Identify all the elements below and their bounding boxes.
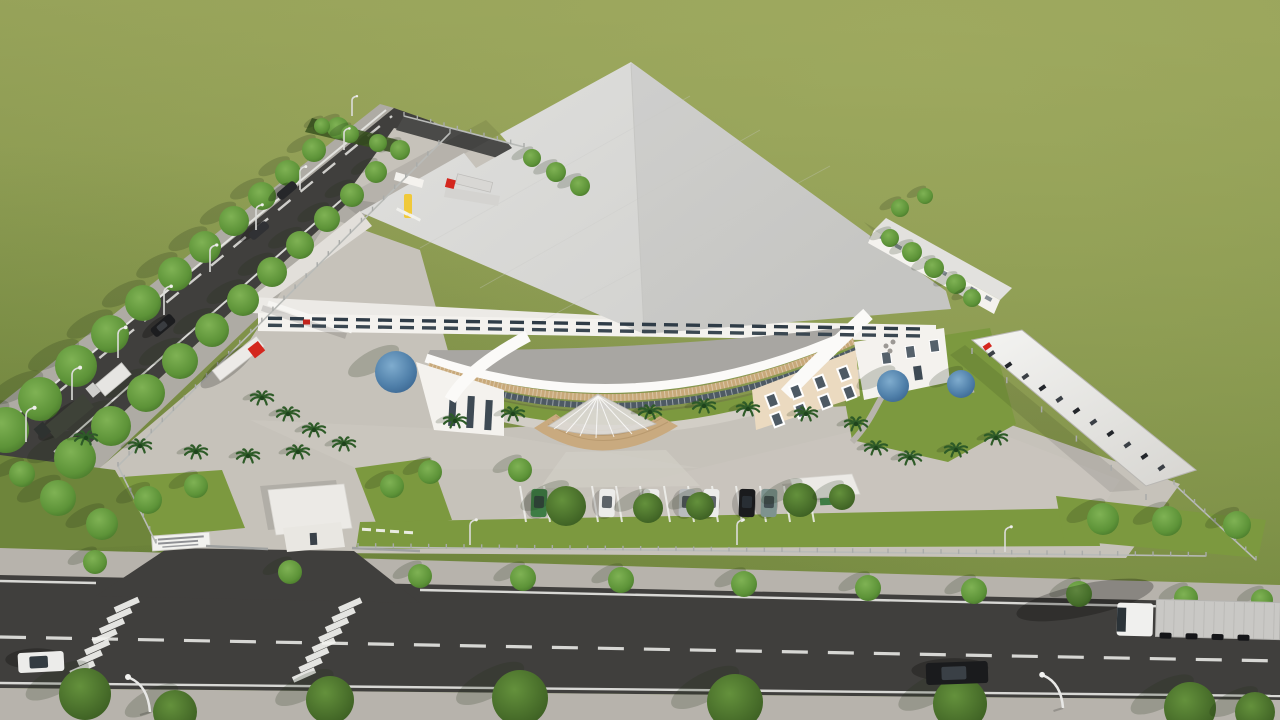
factory-logo: [303, 320, 310, 325]
gatehouse-door: [310, 533, 318, 545]
rendered-scene: [0, 0, 1280, 720]
